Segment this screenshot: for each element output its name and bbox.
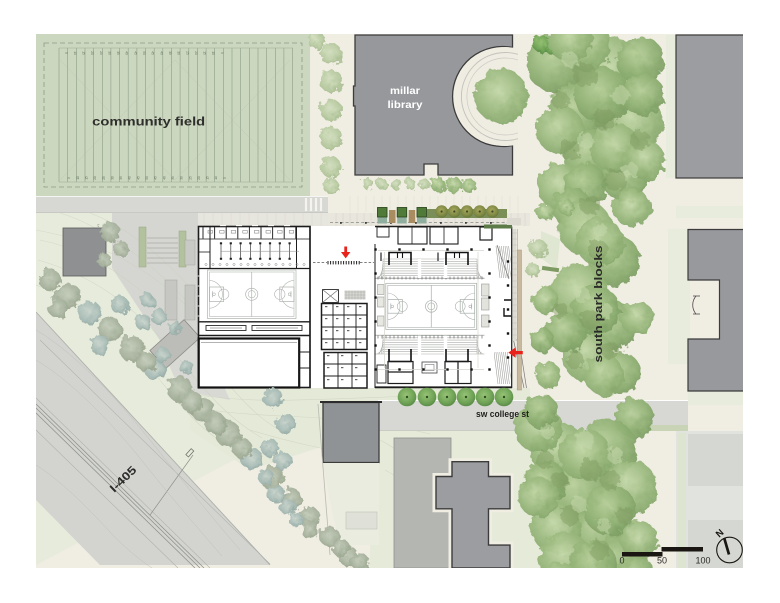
svg-text:45: 45: [133, 51, 137, 55]
svg-text:30: 30: [180, 176, 184, 180]
svg-text:35: 35: [168, 51, 172, 55]
svg-text:30: 30: [110, 176, 114, 180]
svg-text:30: 30: [177, 51, 181, 55]
svg-text:25: 25: [185, 51, 189, 55]
svg-text:40: 40: [162, 176, 166, 180]
svg-text:10: 10: [211, 51, 215, 55]
svg-text:50: 50: [145, 176, 149, 180]
svg-text:45: 45: [154, 176, 158, 180]
svg-text:20: 20: [194, 51, 198, 55]
svg-text:20: 20: [197, 176, 201, 180]
svg-text:20: 20: [93, 176, 97, 180]
svg-text:south park blocks: south park blocks: [593, 246, 605, 363]
svg-text:0: 0: [619, 556, 624, 566]
svg-text:5: 5: [223, 177, 227, 179]
svg-text:5: 5: [220, 52, 224, 54]
svg-text:25: 25: [99, 51, 103, 55]
svg-text:community field: community field: [92, 115, 205, 129]
svg-text:100: 100: [695, 556, 710, 566]
svg-text:15: 15: [203, 51, 207, 55]
svg-text:15: 15: [206, 176, 210, 180]
svg-text:10: 10: [76, 176, 80, 180]
svg-text:45: 45: [136, 176, 140, 180]
svg-text:5: 5: [64, 52, 68, 54]
svg-text:50: 50: [657, 556, 667, 566]
svg-text:50: 50: [142, 51, 146, 55]
svg-text:20: 20: [90, 51, 94, 55]
svg-text:10: 10: [73, 51, 77, 55]
svg-text:30: 30: [107, 51, 111, 55]
svg-text:10: 10: [214, 176, 218, 180]
svg-text:40: 40: [159, 51, 163, 55]
svg-text:library: library: [388, 100, 423, 111]
svg-text:5: 5: [67, 177, 71, 179]
svg-text:35: 35: [116, 51, 120, 55]
svg-text:15: 15: [85, 176, 89, 180]
svg-text:40: 40: [128, 176, 132, 180]
svg-text:sw college st: sw college st: [476, 409, 530, 420]
svg-text:45: 45: [151, 51, 155, 55]
svg-text:millar: millar: [390, 86, 420, 97]
svg-text:25: 25: [102, 176, 106, 180]
svg-text:25: 25: [188, 176, 192, 180]
svg-text:15: 15: [82, 51, 86, 55]
svg-text:35: 35: [119, 176, 123, 180]
svg-text:40: 40: [125, 51, 129, 55]
